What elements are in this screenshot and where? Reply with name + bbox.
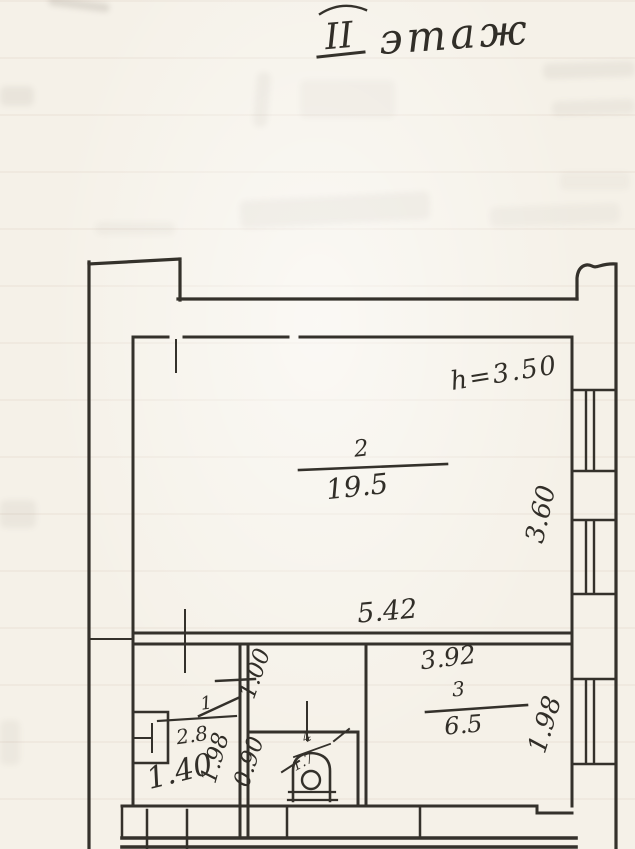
vent-duct-mark (133, 724, 152, 752)
window-icon (572, 679, 616, 764)
page-title: II этаж (318, 4, 532, 63)
dimension-hall-lower: 0.90 (229, 733, 270, 790)
room-area: 6.5 (443, 709, 483, 740)
ceiling-height-note: h=3.50 (448, 350, 560, 397)
labels: h=3.50 2 19.5 3 6.5 1 2.8 4 1.7 5.42 3.9… (143, 350, 568, 797)
room-number: 2 (352, 435, 370, 462)
exterior-wall-bottom (122, 838, 576, 847)
partition-wc-right (358, 644, 366, 806)
windows (572, 390, 616, 764)
dimension-room2-width: 5.42 (356, 593, 419, 629)
lower-level-walls (147, 806, 420, 849)
dimension-right-lower: 1.98 (523, 693, 569, 757)
partition-room2-bottom (133, 633, 572, 644)
room-number: 1 (199, 692, 213, 714)
room-area: 19.5 (324, 467, 389, 506)
title-flourish (320, 6, 366, 14)
room-area: 2.8 (174, 721, 210, 749)
dimension-right-upper: 3.60 (520, 483, 562, 546)
toilet-flush (302, 771, 320, 789)
window-icon (572, 520, 616, 594)
pilaster-top-left (89, 259, 180, 300)
dimension-room1-bottom: 1.40 (143, 747, 216, 797)
room-label-fraction-line (158, 716, 236, 721)
room-number: 3 (451, 677, 466, 702)
scanned-floor-plan-page: II этаж h=3.50 2 19.5 3 6.5 1 2.8 4 1.7 … (0, 0, 635, 849)
pilaster-top-right (577, 264, 616, 849)
dimension-room3-width: 3.92 (419, 640, 478, 676)
floor-word: этаж (377, 4, 532, 63)
window-icon (572, 390, 616, 471)
bottom-inner-line (122, 806, 572, 813)
floor-numeral: II (322, 15, 356, 58)
floor-plan-drawing: II этаж h=3.50 2 19.5 3 6.5 1 2.8 4 1.7 … (0, 0, 635, 849)
